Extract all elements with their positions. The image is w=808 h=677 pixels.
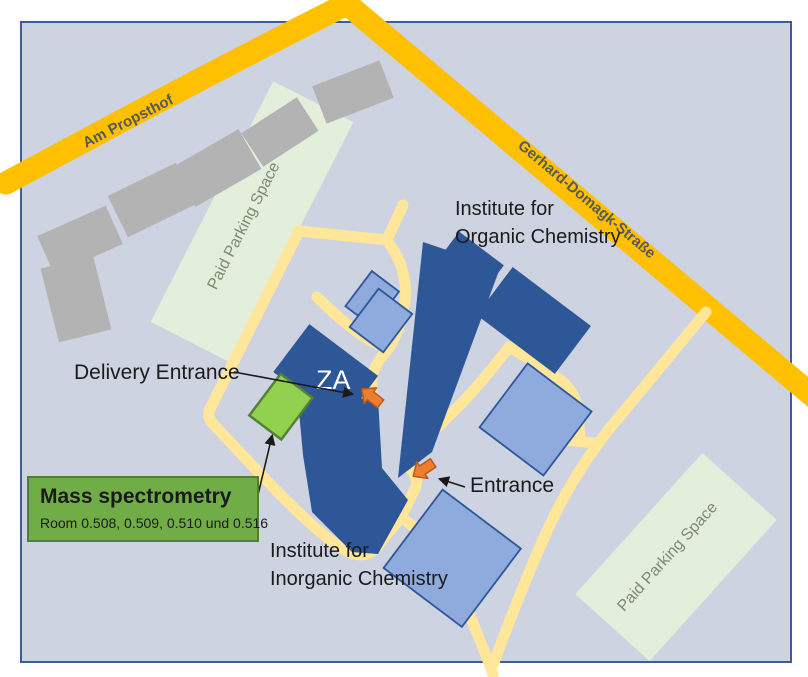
organic-institute-label-line1: Institute for <box>455 198 554 220</box>
inorganic-institute-label-line1: Institute for <box>270 540 369 562</box>
mass-spectrometry-rooms: Room 0.508, 0.509, 0.510 und 0.516 <box>40 515 268 531</box>
inorganic-institute-label-line2: Inorganic Chemistry <box>270 568 448 590</box>
map-canvas: Paid Parking Space Paid Parking Space Am… <box>0 0 808 677</box>
delivery-entrance-label: Delivery Entrance <box>74 361 240 384</box>
organic-institute-label-line2: Organic Chemistry <box>455 226 621 248</box>
campus-map: Paid Parking Space Paid Parking Space Am… <box>0 0 808 677</box>
mass-spectrometry-callout: Mass spectrometry Room 0.508, 0.509, 0.5… <box>28 477 268 541</box>
mass-spectrometry-title: Mass spectrometry <box>40 485 232 508</box>
entrance-label: Entrance <box>470 474 554 497</box>
